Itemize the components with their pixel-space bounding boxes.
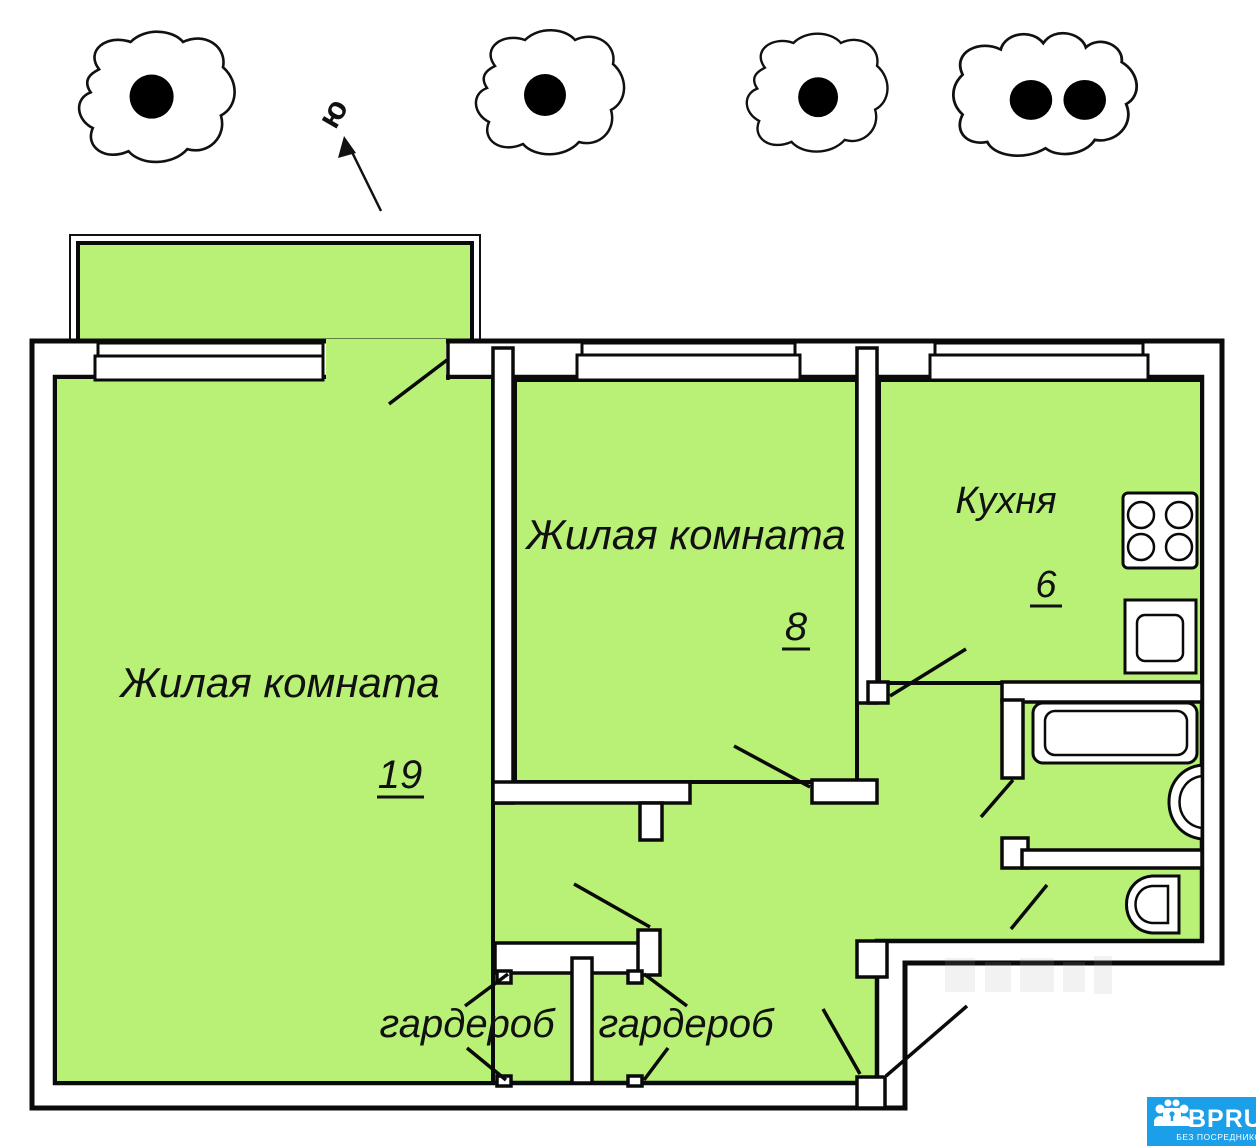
room-label-wardrobe-2: гардероб [598, 1002, 775, 1046]
tree-icon [476, 30, 624, 154]
kitchen-sink-icon [1125, 600, 1196, 673]
window-symbol [577, 343, 800, 380]
room-label-living-2: Жилая комната [524, 511, 845, 558]
bathtub-icon [1033, 703, 1197, 763]
room-label-living-1: Жилая комната [118, 659, 439, 706]
room-label-wardrobe-1: гардероб [379, 1002, 556, 1046]
site-logo: BPRU БЕЗ ПОСРЕДНИКОВ [1147, 1097, 1256, 1146]
toilet-icon [1127, 876, 1180, 933]
tree-symbols [79, 30, 1137, 162]
windows [95, 343, 1148, 380]
window-symbol [930, 343, 1148, 380]
balcony [70, 235, 480, 345]
logo-text: BPRU [1188, 1105, 1256, 1133]
room-area-kitchen: 6 [1035, 564, 1057, 606]
floor-plan-page: ю [0, 0, 1256, 1146]
north-arrow: ю [310, 92, 381, 211]
stove-icon [1123, 493, 1197, 568]
compass-label: ю [310, 92, 355, 134]
logo-subtext: БЕЗ ПОСРЕДНИКОВ [1176, 1132, 1256, 1142]
room-area-living-1: 19 [378, 753, 423, 797]
tree-icon [953, 33, 1136, 155]
room-living-2 [515, 380, 857, 782]
room-label-kitchen: Кухня [955, 480, 1056, 522]
tree-icon [79, 32, 234, 162]
tree-icon [747, 34, 888, 152]
room-area-living-2: 8 [785, 605, 808, 649]
room-living-1 [55, 377, 493, 1083]
window-symbol [95, 343, 323, 380]
